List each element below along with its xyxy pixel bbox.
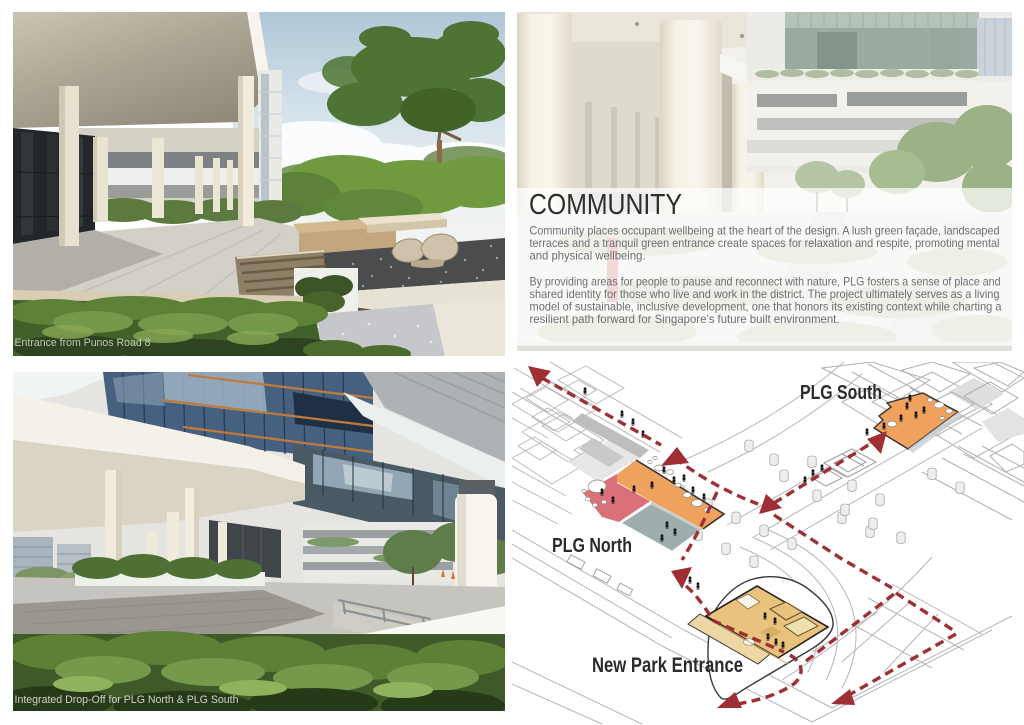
svg-text:By providing areas for people: By providing areas for people to pause a… [530,276,1001,289]
svg-text:model of sustainable, inclusiv: model of sustainable, inclusive developm… [530,301,1003,314]
svg-text:PLG South: PLG South [800,382,882,404]
svg-text:shared identity for those who: shared identity for those who live and w… [530,288,1000,301]
svg-text:PLG North: PLG North [552,535,632,557]
svg-text:Community places occupant well: Community places occupant wellbeing at t… [530,225,1000,238]
svg-text:New Park Entrance: New Park Entrance [592,654,743,677]
svg-text:Integrated Drop-Off for PLG No: Integrated Drop-Off for PLG North & PLG … [15,694,239,706]
svg-text:terraces and a tranquil green: terraces and a tranquil green entrance c… [530,237,1000,250]
svg-text:Entrance from Punos Road 8: Entrance from Punos Road 8 [15,337,151,349]
svg-text:resilient path forward for Sin: resilient path forward for Singapore’s f… [530,313,840,326]
svg-text:and physical wellbeing.: and physical wellbeing. [530,250,646,263]
svg-text:COMMUNITY: COMMUNITY [529,189,682,221]
